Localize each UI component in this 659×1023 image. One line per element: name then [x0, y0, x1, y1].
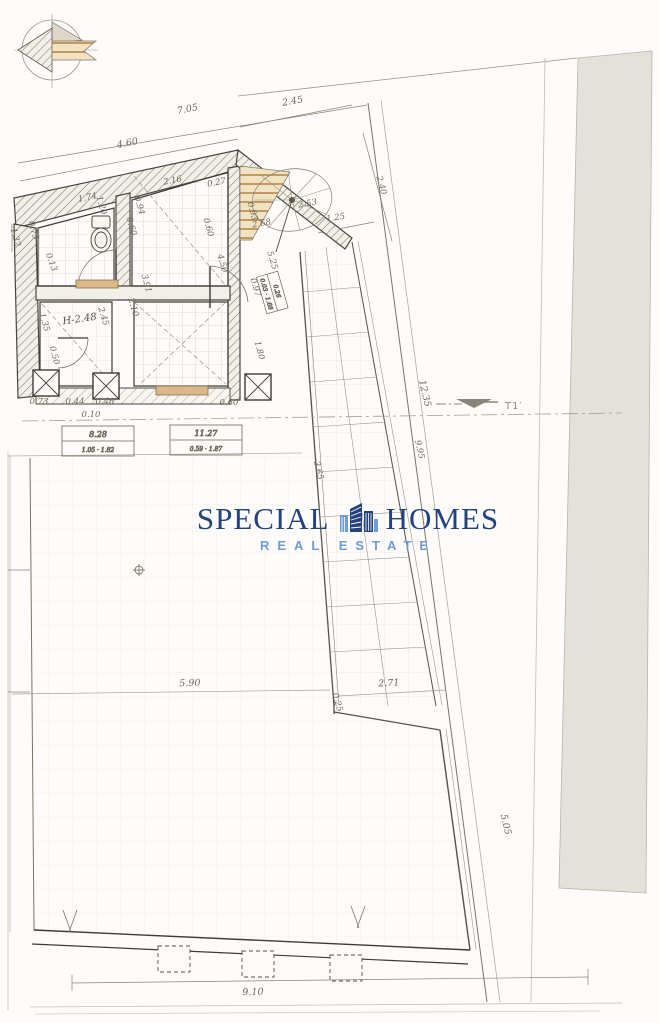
adjacent-building-strip — [559, 51, 652, 893]
dimension-label: 4.60 — [115, 136, 139, 151]
radiator — [156, 386, 208, 395]
main-hall — [8, 413, 622, 991]
column-box — [33, 370, 59, 396]
dimension-label: 0.60 — [220, 398, 240, 408]
dimension-label: 1.80 — [252, 340, 267, 361]
dimension-label: 5.25 — [264, 250, 279, 271]
dimension-label: 0.44 — [66, 397, 85, 407]
area-sub-value: 1.05 · 1.82 — [82, 447, 115, 454]
bottom-pillar-boxes — [158, 946, 362, 981]
column-box — [245, 374, 271, 400]
section-marker: T1′ — [436, 399, 523, 412]
dimension-label: 5.05 — [498, 813, 513, 836]
dimension-label: 2.45 — [280, 94, 304, 109]
north-arrow-icon — [14, 14, 98, 88]
area-value: 0.26 — [271, 284, 281, 299]
dimension-label: 0.10 — [82, 410, 102, 420]
dimension-label: 2.71 — [377, 677, 400, 689]
dimension-label: 9.95 — [412, 439, 426, 460]
dimension-label: 0.46 — [96, 397, 116, 407]
toilet-icon — [91, 216, 111, 252]
dimension-label: 12.35 — [416, 379, 433, 408]
column-box — [93, 373, 119, 399]
floor-plan-page: T1′ 8.28 1.05 · 1.82 11.27 0.59 · 1.87 0… — [0, 0, 659, 1023]
dimension-label: 0.73 — [30, 397, 49, 407]
area-sub-value: 0.59 · 1.87 — [190, 446, 223, 453]
area-box-1: 8.28 1.05 · 1.82 — [62, 426, 134, 456]
dimension-label: 9.10 — [242, 987, 263, 998]
area-box-2: 11.27 0.59 · 1.87 — [170, 425, 242, 455]
dimension-label: 7.05 — [176, 102, 199, 117]
dimension-label: 1.25 — [326, 212, 346, 225]
floor-plan-drawing: T1′ 8.28 1.05 · 1.82 11.27 0.59 · 1.87 0… — [0, 0, 659, 1023]
area-value: 8.28 — [89, 430, 107, 439]
dimension-label: 5.90 — [179, 678, 201, 690]
section-marker-label: T1′ — [504, 401, 523, 412]
dimension-label: 2.40 — [373, 174, 388, 196]
threshold — [76, 280, 118, 288]
area-value: 11.27 — [195, 429, 219, 438]
